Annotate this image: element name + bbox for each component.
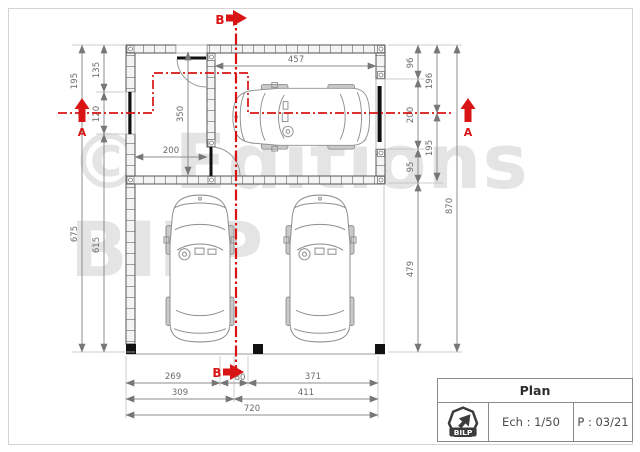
section-a-arrow-icon bbox=[461, 98, 476, 109]
dim-bottom-371: 371 bbox=[305, 372, 321, 382]
dim-left-135: 135 bbox=[92, 62, 102, 78]
dim-interior-200: 200 bbox=[163, 146, 179, 156]
entry-door-opening bbox=[176, 45, 207, 53]
dim-right-479: 479 bbox=[406, 261, 416, 277]
drawing-title: Plan bbox=[438, 379, 632, 403]
section-a-left-label: A bbox=[78, 126, 87, 139]
section-a-arrow-icon bbox=[75, 98, 90, 109]
dim-right-195: 195 bbox=[425, 140, 435, 156]
plan-sheet: © Editions BILP bbox=[0, 0, 640, 452]
dim-left-120: 120 bbox=[92, 106, 102, 122]
bilp-logo: BILP bbox=[438, 403, 489, 441]
carport-car-2 bbox=[284, 195, 356, 342]
car-in-garage bbox=[233, 83, 370, 151]
section-marker-a-left: A bbox=[75, 98, 90, 139]
page-number-label: P : 03/21 bbox=[574, 403, 632, 441]
dim-left-615: 615 bbox=[92, 237, 102, 253]
carport-car-1 bbox=[164, 195, 236, 342]
logo-text: BILP bbox=[454, 427, 473, 436]
dim-right-200: 200 bbox=[406, 107, 416, 123]
garage-door bbox=[378, 86, 382, 142]
title-block: Plan BILP Ech : 1/50 P : 03/21 bbox=[437, 378, 633, 442]
section-b-top-label: B bbox=[215, 13, 224, 27]
carport-left-wall bbox=[126, 184, 135, 344]
dim-bottom-411: 411 bbox=[298, 388, 314, 398]
dim-bottom-720: 720 bbox=[244, 404, 260, 414]
bilp-logo-icon: BILP bbox=[445, 406, 481, 439]
dim-right-96: 96 bbox=[406, 58, 416, 69]
section-a-right-label: A bbox=[464, 126, 473, 139]
dim-right-196: 196 bbox=[425, 73, 435, 89]
dim-left-675: 675 bbox=[70, 226, 80, 242]
section-marker-b-top: B bbox=[215, 10, 247, 27]
dim-left-195: 195 bbox=[70, 73, 80, 89]
dim-right-95: 95 bbox=[406, 162, 416, 173]
dim-bottom-269: 269 bbox=[165, 372, 181, 382]
dim-interior-350: 350 bbox=[176, 106, 186, 122]
dim-bottom-309: 309 bbox=[172, 388, 188, 398]
carport-posts bbox=[126, 344, 385, 354]
section-marker-a-right: A bbox=[461, 98, 476, 139]
dim-top-457: 457 bbox=[288, 55, 304, 65]
scale-label: Ech : 1/50 bbox=[489, 403, 574, 441]
section-b-arrow-icon bbox=[233, 10, 247, 26]
dim-right-870: 870 bbox=[445, 198, 455, 214]
partition-wall bbox=[207, 53, 215, 147]
section-b-bottom-label: B bbox=[212, 366, 221, 380]
